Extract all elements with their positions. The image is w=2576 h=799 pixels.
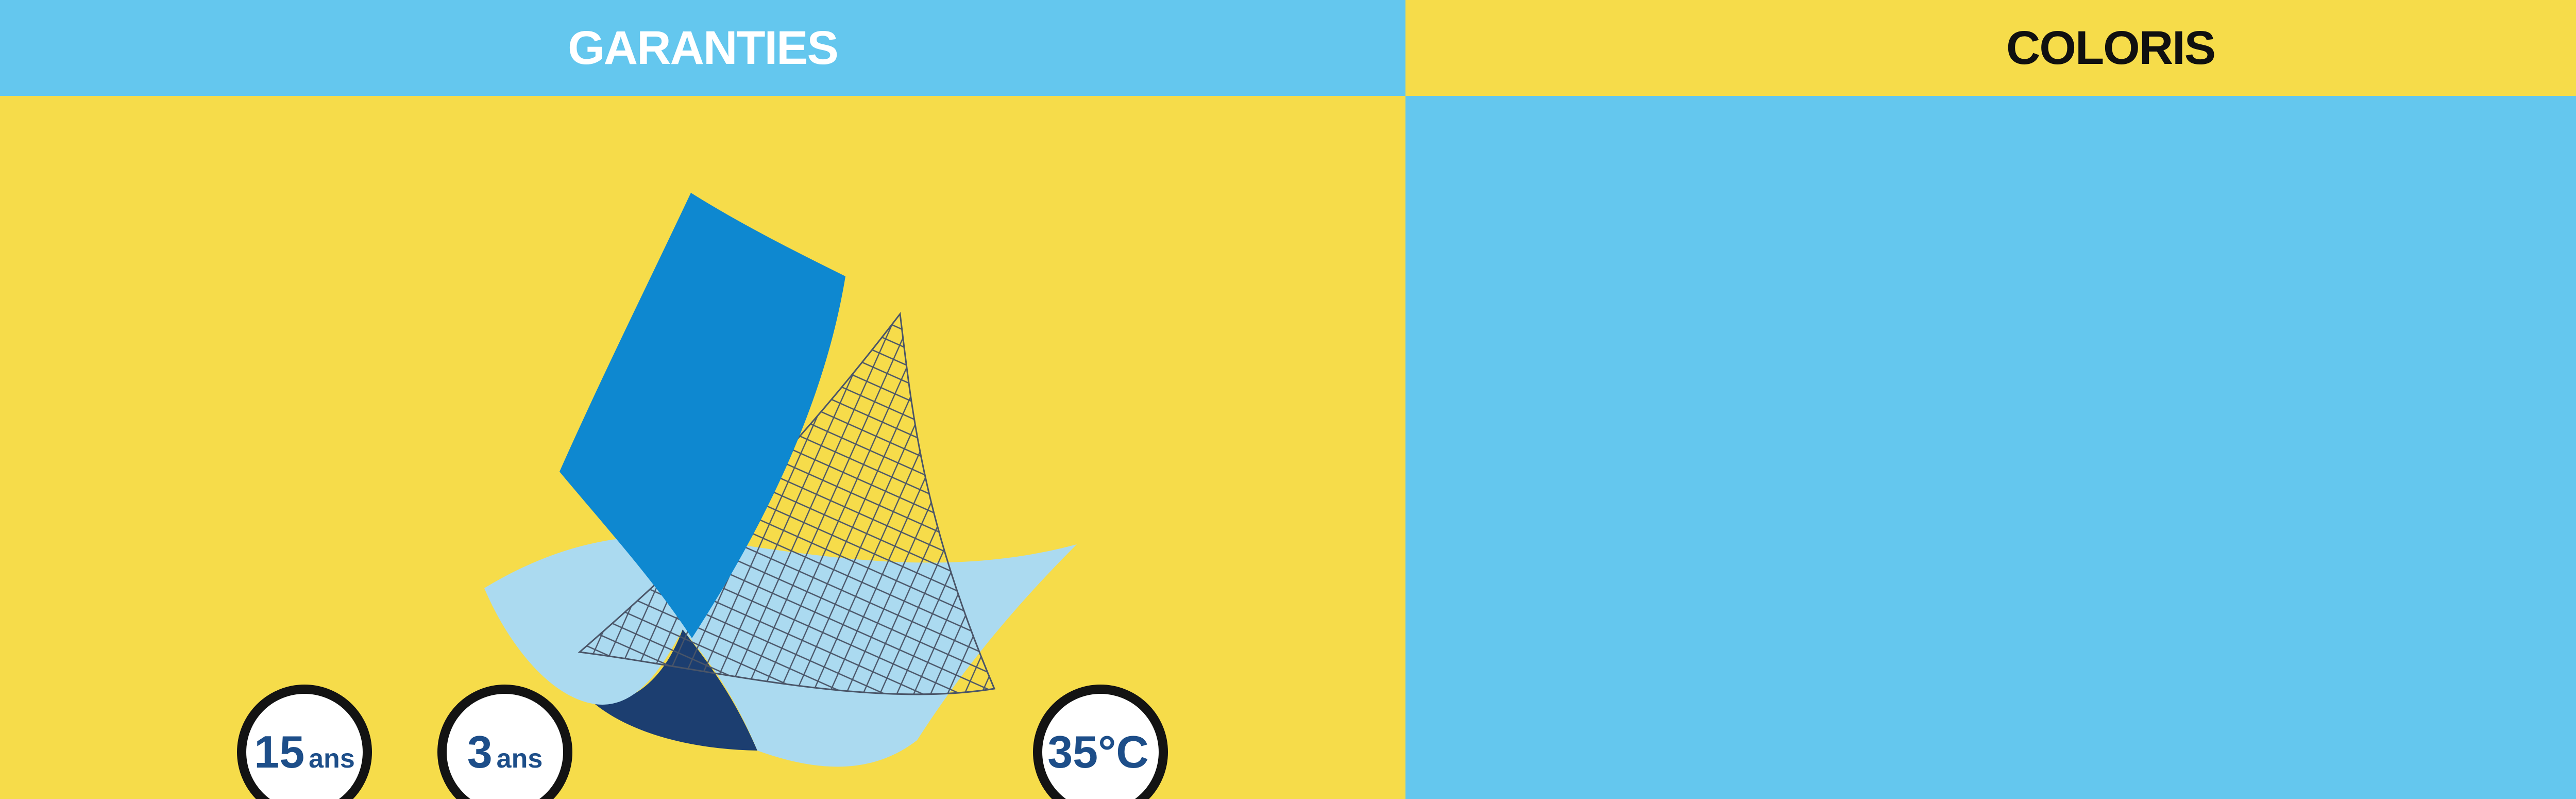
badge-etancheite-value: 15 [254, 729, 304, 775]
badge-temperature-circle: 35°C [1033, 685, 1168, 799]
badge-etancheite: 15 ans ÉTANCHÉITÉ [229, 685, 380, 799]
badge-resistance-figures: 3 ans [467, 729, 543, 775]
badge-etancheite-figures: 15 ans [254, 729, 355, 775]
product-info-sheet: GARANTIES 15 ans ÉTANCHÉITÉ [0, 0, 2576, 799]
badge-resistance-value: 3 [467, 729, 493, 775]
garanties-title: GARANTIES [568, 21, 838, 75]
coloris-title: COLORIS [2006, 21, 2215, 75]
coloris-header: COLORIS [1405, 0, 2576, 96]
mesh-layer [580, 314, 994, 694]
badge-temperature-value: 35°C [1047, 729, 1149, 775]
blue-sheet-layer [560, 193, 845, 638]
garanties-header: GARANTIES [0, 0, 1405, 96]
badge-resistance-taches: 3 ans RÉSISTANCE TÂCHES [412, 685, 598, 799]
badge-etancheite-circle: 15 ans [237, 685, 372, 799]
badge-temperature-figures: 35°C [1047, 729, 1153, 775]
badge-temperature: 35°C TEMPÉRATURE [1024, 685, 1176, 799]
coloris-body: White riviera Calacata marble Black slat… [1405, 96, 2576, 799]
navy-fold-layer [595, 629, 757, 751]
badge-resistance-unit: ans [497, 745, 543, 772]
garanties-body: 15 ans ÉTANCHÉITÉ 3 ans RÉSISTANCE TÂCHE… [0, 96, 1405, 799]
badge-resistance-circle: 3 ans [437, 685, 572, 799]
badge-etancheite-unit: ans [309, 745, 355, 772]
